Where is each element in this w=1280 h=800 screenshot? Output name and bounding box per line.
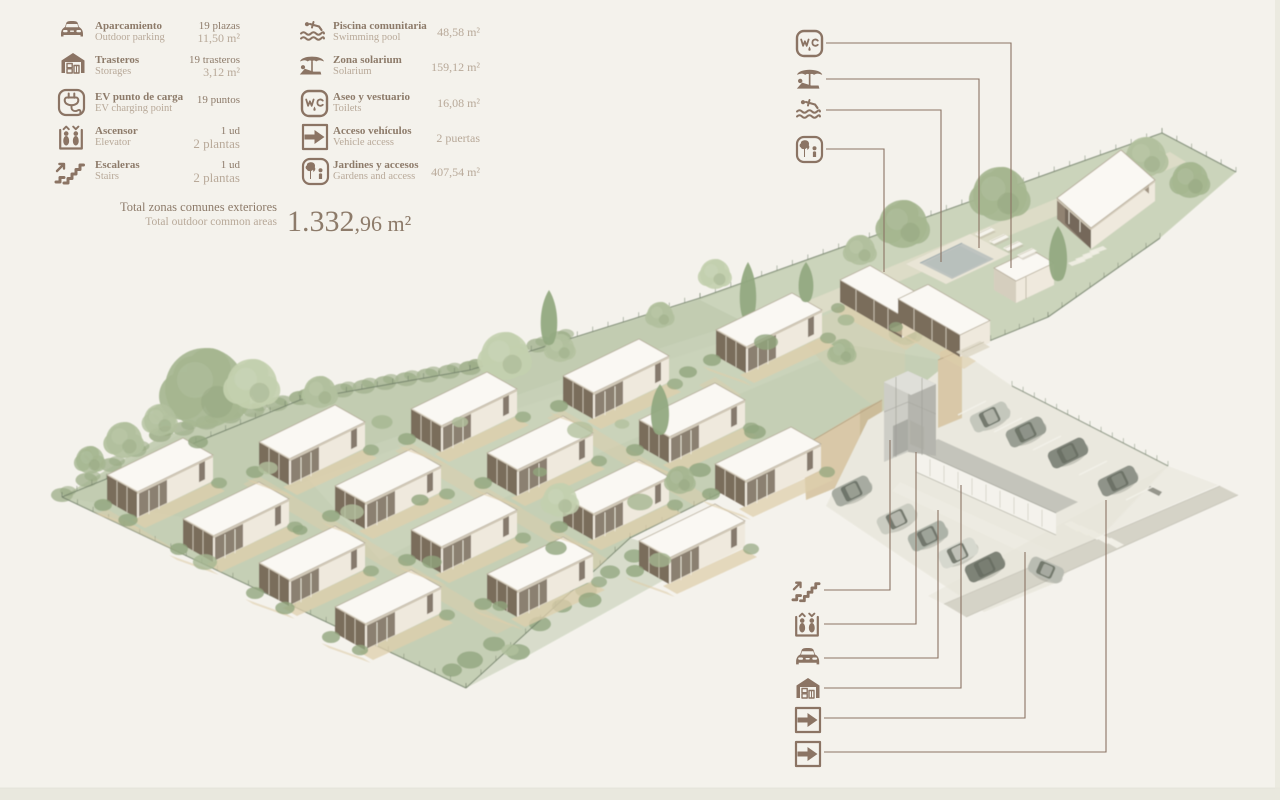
svg-text:19 puntos: 19 puntos: [197, 94, 240, 106]
svg-text:Outdoor parking: Outdoor parking: [95, 32, 165, 43]
svg-text:Toilets: Toilets: [333, 103, 361, 114]
svg-text:EV charging point: EV charging point: [95, 103, 172, 114]
svg-text:3,12 m²: 3,12 m²: [203, 65, 240, 79]
svg-text:48,58 m²: 48,58 m²: [437, 25, 480, 39]
svg-text:2 puertas: 2 puertas: [436, 131, 480, 145]
svg-text:Acceso vehículos: Acceso vehículos: [333, 125, 412, 137]
svg-text:2 plantas: 2 plantas: [193, 170, 240, 185]
svg-text:Aseo y vestuario: Aseo y vestuario: [333, 91, 410, 103]
svg-text:16,08 m²: 16,08 m²: [437, 96, 480, 110]
svg-text:Ascensor: Ascensor: [95, 125, 138, 137]
svg-text:Total zonas comunes exteriores: Total zonas comunes exteriores: [120, 200, 277, 214]
svg-text:Piscina comunitaria: Piscina comunitaria: [333, 20, 427, 32]
svg-text:Vehicle access: Vehicle access: [333, 137, 394, 148]
svg-text:Total outdoor common areas: Total outdoor common areas: [145, 216, 277, 228]
svg-text:Gardens and access: Gardens and access: [333, 171, 415, 182]
svg-text:Jardines y accesos: Jardines y accesos: [333, 159, 419, 171]
svg-text:Elevator: Elevator: [95, 137, 131, 148]
svg-text:11,50 m²: 11,50 m²: [198, 31, 241, 45]
svg-text:Trasteros: Trasteros: [95, 54, 140, 66]
svg-text:Aparcamiento: Aparcamiento: [95, 20, 163, 32]
svg-text:407,54 m²: 407,54 m²: [431, 165, 480, 179]
svg-text:Stairs: Stairs: [95, 171, 119, 182]
svg-text:Escaleras: Escaleras: [95, 159, 140, 171]
svg-text:Solarium: Solarium: [333, 66, 372, 77]
svg-text:Storages: Storages: [95, 66, 131, 77]
svg-text:Swimming pool: Swimming pool: [333, 32, 400, 43]
svg-text:Zona solarium: Zona solarium: [333, 54, 402, 66]
svg-text:2 plantas: 2 plantas: [193, 136, 240, 151]
svg-text:159,12 m²: 159,12 m²: [431, 60, 480, 74]
svg-text:EV punto de carga: EV punto de carga: [95, 91, 184, 103]
